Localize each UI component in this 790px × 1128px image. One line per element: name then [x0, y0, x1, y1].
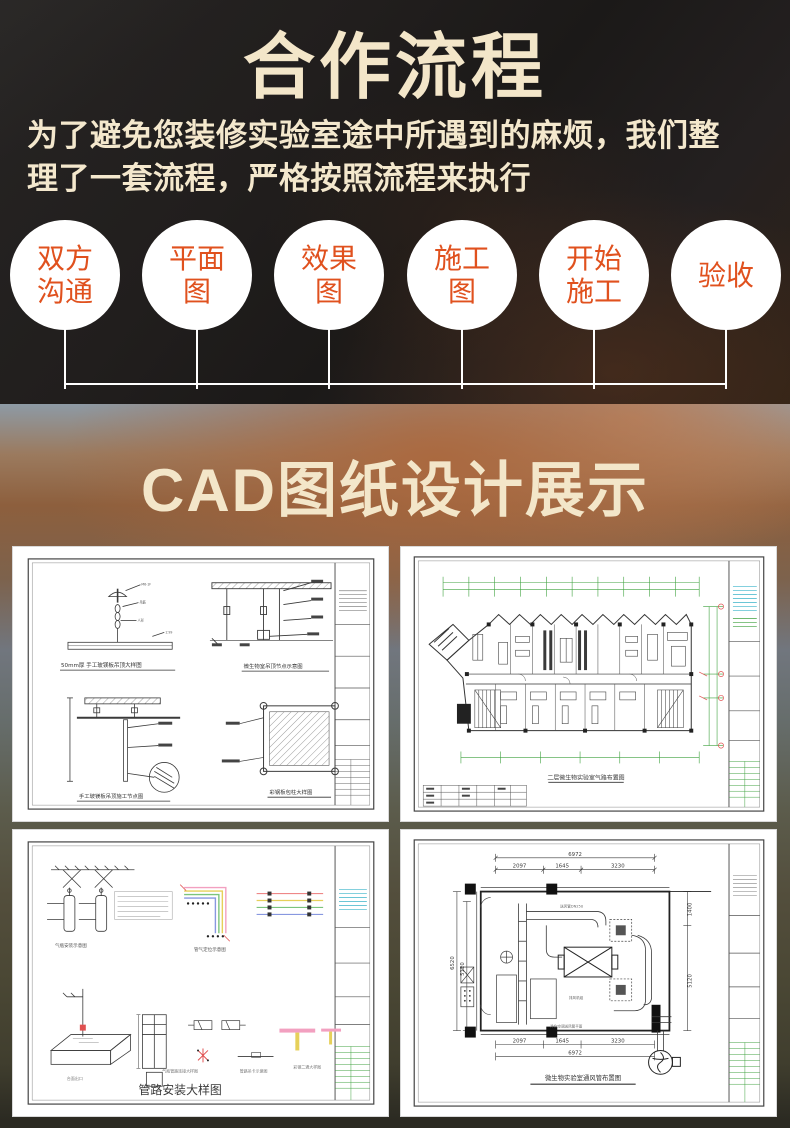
step-label: 平面 [169, 242, 225, 275]
process-connector-drop-3 [328, 328, 330, 389]
detail-c-caption: 手工玻镁板吊顶施工节点图 [79, 792, 143, 800]
svg-text:净化空调送风管平面: 净化空调送风管平面 [550, 1024, 582, 1029]
step-circle-acceptance: 验收 [671, 220, 781, 330]
dim-right-top: 1400 [687, 902, 693, 916]
promo-page: 合作流程 为了避免您装修实验室途中所遇到的麻烦，我们整 理了一套流程，严格按照流… [0, 0, 790, 1128]
dim-bottom-total: 6972 [568, 1050, 582, 1056]
step-label: 图 [315, 275, 343, 308]
process-connector-drop-2 [196, 328, 198, 389]
bundle-detail-caption: 管气定位示意图 [194, 946, 226, 953]
detail-d-caption: 彩钢板包柱大样图 [269, 788, 312, 796]
dim-right-bottom: 5120 [687, 974, 693, 988]
svg-text:排风机组: 排风机组 [569, 995, 584, 1000]
cad-drawing-vent-plan: 6972 2097 1645 3230 6520 512 [401, 830, 776, 1116]
step-label: 效果 [301, 242, 357, 275]
step-label: 开始 [566, 242, 622, 275]
svg-text:彩钢二通大样图: 彩钢二通大样图 [293, 1064, 321, 1069]
step-label: 施工 [566, 275, 622, 308]
dim-top-c: 3230 [611, 864, 625, 870]
cylinder-detail-caption: 气瓶安装示意图 [55, 942, 87, 949]
step-circle-start-construction: 开始 施工 [539, 220, 649, 330]
detail-b-caption: 微生物室吊顶节点示意图 [244, 662, 303, 670]
svg-text:气瓶管路连接大样图: 气瓶管路连接大样图 [162, 1068, 198, 1073]
process-connector-drop-5 [593, 328, 595, 389]
dim-bottom-c: 3230 [611, 1039, 625, 1045]
step-label: 图 [183, 275, 211, 308]
dim-top-b: 1645 [555, 864, 569, 870]
svg-text:送风管DN250: 送风管DN250 [560, 903, 584, 908]
step-circle-communication: 双方 沟通 [10, 220, 120, 330]
cad-drawing-floor-plan: 二层微生物实验室气路布置图 [401, 547, 776, 821]
section-cooperation-process: 合作流程 为了避免您装修实验室途中所遇到的麻烦，我们整 理了一套流程，严格按照流… [0, 0, 790, 404]
cad-card-detail-sheet: M6-1F吊筋 人形1:99 50mm厚 手工玻镁板吊顶大样图 [12, 546, 389, 822]
vent-plan-caption: 微生物实验室通风管布置图 [545, 1073, 621, 1082]
svg-text:吊筋: 吊筋 [139, 600, 145, 605]
floor-plan-caption: 二层微生物实验室气路布置图 [547, 773, 624, 781]
cad-card-pipe-detail: 气瓶安装示意图 管气定位示意图 [12, 829, 389, 1117]
process-description: 为了避免您装修实验室途中所遇到的麻烦，我们整 理了一套流程，严格按照流程来执行 [27, 114, 772, 200]
svg-text:台面出口: 台面出口 [67, 1076, 83, 1081]
cad-card-vent-plan: 6972 2097 1645 3230 6520 512 [400, 829, 777, 1117]
step-label: 沟通 [37, 275, 93, 308]
process-connector-drop-4 [461, 328, 463, 389]
step-label: 验收 [698, 259, 754, 292]
cad-drawing-ceiling-details: M6-1F吊筋 人形1:99 50mm厚 手工玻镁板吊顶大样图 [13, 547, 388, 821]
step-label: 施工 [434, 242, 490, 275]
step-label: 双方 [37, 242, 93, 275]
section-cad-showcase: CAD图纸设计展示 [0, 404, 790, 1128]
process-connector-drop-1 [64, 328, 66, 389]
dim-left-outer: 6520 [450, 956, 456, 970]
step-label: 图 [448, 275, 476, 308]
cad-drawing-pipe-details: 气瓶安装示意图 管气定位示意图 [13, 830, 388, 1116]
process-description-line2: 理了一套流程，严格按照流程来执行 [27, 157, 772, 200]
dim-top-a: 2097 [513, 864, 527, 870]
process-connector-drop-6 [725, 328, 727, 389]
cad-card-floor-plan: 二层微生物实验室气路布置图 [400, 546, 777, 822]
page-title: 合作流程 [0, 8, 790, 113]
step-circle-render: 效果 图 [274, 220, 384, 330]
process-description-line1: 为了避免您装修实验室途中所遇到的麻烦，我们整 [27, 114, 772, 157]
cad-section-title: CAD图纸设计展示 [0, 442, 790, 529]
dim-top-total: 6972 [568, 852, 582, 858]
svg-text:M6-1F: M6-1F [141, 583, 151, 587]
dim-bottom-a: 2097 [513, 1039, 527, 1045]
svg-text:管路吊卡示意图: 管路吊卡示意图 [240, 1068, 268, 1073]
svg-text:1:99: 1:99 [165, 630, 172, 634]
step-circle-floor-plan: 平面 图 [142, 220, 252, 330]
process-connector-line [64, 383, 727, 385]
svg-text:人形: 人形 [137, 617, 144, 622]
dim-bottom-b: 1645 [555, 1039, 569, 1045]
pipe-detail-caption: 管路安装大样图 [138, 1083, 221, 1097]
step-circle-construction-drawing: 施工 图 [407, 220, 517, 330]
detail-a-caption: 50mm厚 手工玻镁板吊顶大样图 [61, 661, 142, 669]
